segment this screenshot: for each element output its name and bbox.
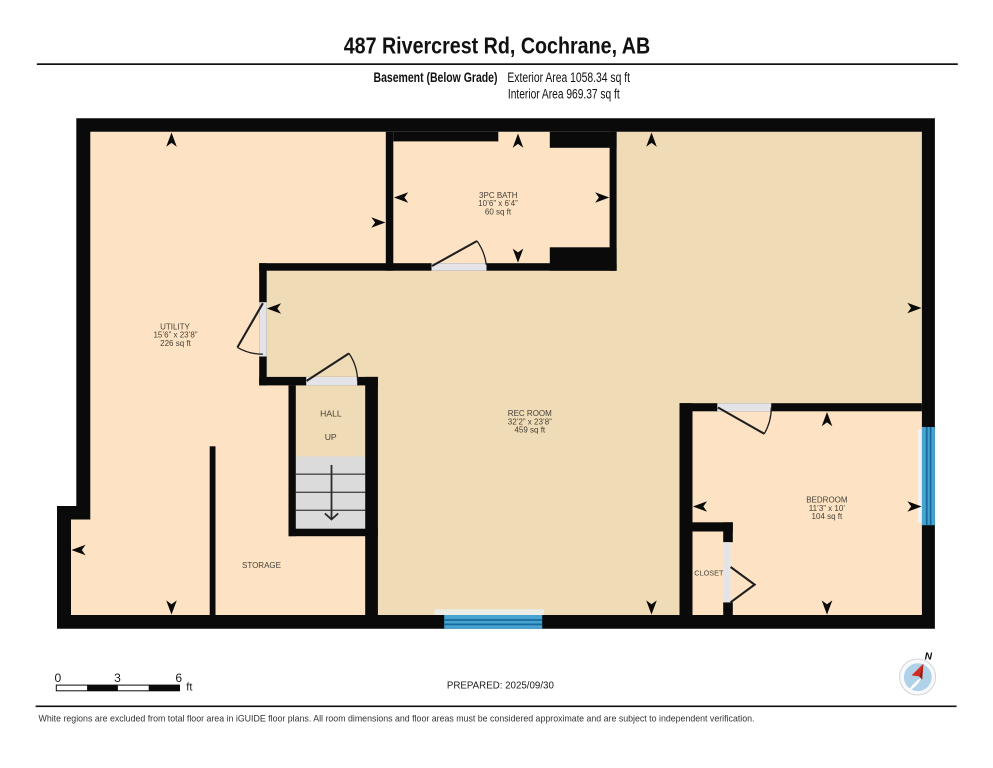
svg-text:0: 0	[55, 671, 62, 685]
svg-text:STORAGE: STORAGE	[242, 561, 281, 570]
svg-text:6: 6	[175, 671, 182, 685]
svg-text:226 sq ft: 226 sq ft	[160, 339, 191, 348]
svg-text:3: 3	[114, 671, 121, 685]
svg-text:104 sq ft: 104 sq ft	[812, 512, 843, 521]
svg-text:White regions are excluded fro: White regions are excluded from total fl…	[39, 713, 755, 723]
svg-text:Exterior Area 1058.34 sq ft: Exterior Area 1058.34 sq ft	[507, 70, 630, 85]
svg-text:CLOSET: CLOSET	[694, 569, 724, 578]
svg-text:459 sq ft: 459 sq ft	[514, 426, 545, 435]
svg-text:UP: UP	[325, 432, 337, 442]
svg-text:ft: ft	[186, 682, 192, 694]
svg-text:HALL: HALL	[320, 408, 342, 418]
svg-text:PREPARED: 2025/09/30: PREPARED: 2025/09/30	[447, 680, 554, 691]
svg-text:N: N	[925, 652, 933, 663]
svg-text:60 sq ft: 60 sq ft	[485, 208, 512, 217]
svg-text:487 Rivercrest Rd, Cochrane, A: 487 Rivercrest Rd, Cochrane, AB	[344, 33, 651, 59]
svg-text:Interior Area 969.37 sq ft: Interior Area 969.37 sq ft	[508, 87, 620, 102]
svg-text:Basement (Below Grade): Basement (Below Grade)	[374, 70, 498, 85]
